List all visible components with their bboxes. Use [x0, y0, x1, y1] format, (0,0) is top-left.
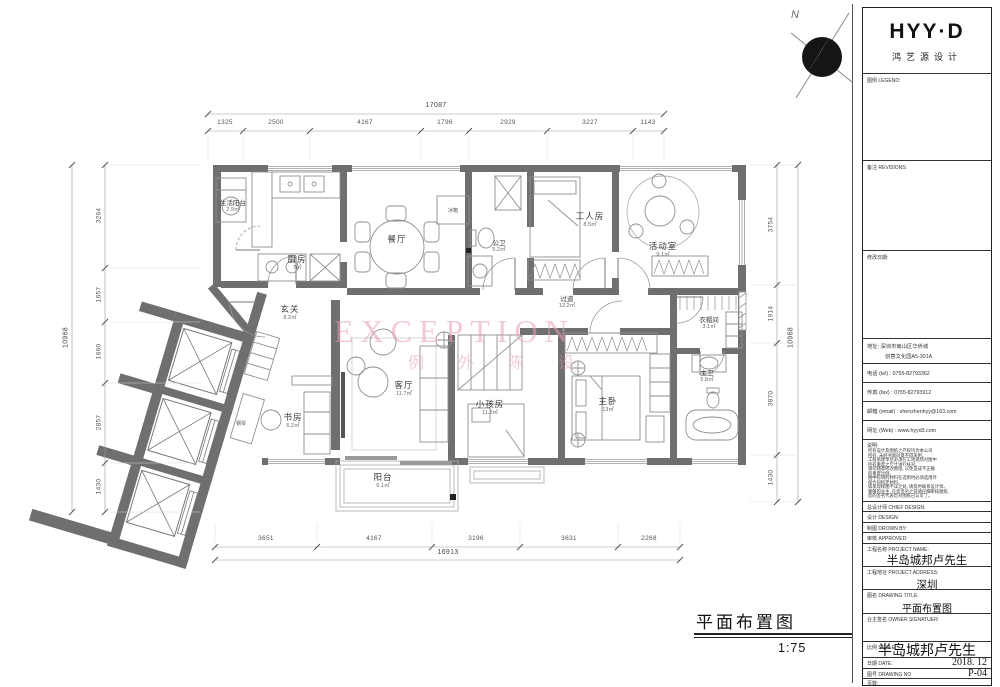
dim-label: 2268: [624, 535, 674, 542]
design-label: 设计 DESIGN:: [867, 514, 899, 521]
room-label-activity-room: 活动室9.1㎡: [618, 242, 708, 258]
plan-title: 平面布置图: [696, 608, 796, 633]
room-label-kids-room: 小孩房11.2㎡: [445, 400, 535, 416]
date-label: 日期 DATE.: [867, 660, 893, 667]
room-label-study: 书房6.2㎡: [248, 413, 338, 429]
dim-label: 4167: [340, 119, 390, 126]
chief-design-label: 总设计师 CHIEF DESIGN:: [867, 504, 925, 511]
revisions-section-label: 备注 REVISIONS:: [867, 164, 907, 171]
address-line2: 创意文化园A5-301A: [885, 352, 932, 360]
plan-title-underline2: [694, 637, 852, 638]
dim-label: 3264: [96, 191, 103, 241]
modify-date-label: 修改日期:: [867, 254, 888, 261]
dim-total-label: 17087: [411, 102, 461, 109]
room-label-living-room: 客厅11.7㎡: [359, 381, 449, 397]
web-row: 网址 (Web) : www.hyyd3.com: [867, 426, 936, 434]
dim-label: 3870: [768, 374, 775, 424]
dim-label: 1430: [96, 462, 103, 512]
project-address-label: 工程地址 PROJECT ADDRESS:: [867, 569, 938, 576]
plan-title-underline: [694, 633, 852, 635]
north-label: N: [791, 9, 799, 21]
dim-label: 1657: [96, 270, 103, 320]
dim-label: 1796: [420, 119, 470, 126]
elevator-core: [28, 248, 266, 569]
room-label-master-bedroom: 主卧13㎡: [563, 397, 653, 413]
room-label-kitchen: 厨房7㎡: [252, 255, 342, 271]
drawing-title-label: 图名 DRAWING TITLE:: [867, 592, 919, 599]
dim-label: 1660: [96, 327, 103, 377]
notes-text: 所有设计及图纸之产权均为本公司所有, 未经书面同意不得采用。 工程承建单位必须在…: [868, 449, 949, 499]
piano-label: 钢琴: [221, 420, 261, 427]
dim-label: 2500: [251, 119, 301, 126]
room-label-corridor: 过道12.2㎡: [522, 296, 612, 310]
dim-total-label: 10968: [63, 313, 70, 363]
room-label-public-bath: 公卫5.2㎡: [454, 240, 544, 254]
title-block: HYY·D 鸿艺源设计 图例 LEGEND: 备注 REVISIONS: 修改日…: [862, 7, 992, 686]
fridge-label: 冰箱: [433, 207, 473, 214]
approved-label: 审核 APPROVED:: [867, 535, 908, 542]
watermark-text: EXCEPTION: [334, 313, 594, 350]
dim-label: 3227: [565, 119, 615, 126]
drawing-sheet: EXCEPTION 例外陈设 N 生活阳台2.9㎡ 厨房7㎡ 餐厅 公卫5.2㎡…: [0, 0, 1000, 687]
company-logo: HYY·D: [863, 20, 991, 44]
room-label-cloakroom: 衣帽间3.1㎡: [664, 317, 754, 331]
date-value: 2018. 12: [952, 657, 987, 668]
owner-signature-label: 业主签名 OWNER SIGNATUER:: [867, 616, 939, 623]
dim-label: 3196: [451, 535, 501, 542]
room-label-dining: 餐厅: [352, 235, 442, 245]
north-arrow-icon: [791, 13, 852, 98]
dim-label: 2857: [96, 398, 103, 448]
drawn-by-label: 制图 DROWN BY:: [867, 525, 907, 532]
room-label-balcony: 阳台6.1㎡: [338, 473, 428, 489]
room-label-service-balcony: 生活阳台2.9㎡: [188, 200, 278, 214]
room-label-foyer: 玄关8.2㎡: [245, 305, 335, 321]
dim-label: 2929: [483, 119, 533, 126]
pages-label: 页数:: [867, 680, 878, 687]
room-label-worker-room: 工人房8.5㎡: [545, 212, 635, 228]
watermark-subtext: 例外陈设: [408, 349, 608, 373]
room-label-master-bath: 主卫5.8㎡: [662, 370, 752, 384]
dim-label: 1143: [623, 119, 673, 126]
plan-scale: 1:75: [778, 641, 806, 655]
dim-label: 4167: [349, 535, 399, 542]
dim-label: 1325: [200, 119, 250, 126]
dim-label: 3651: [241, 535, 291, 542]
email-row: 邮箱 (email) : shenzhenhyy@163.com: [867, 407, 957, 415]
fax-row: 传真 (fax) : 0755-82793912: [867, 388, 931, 396]
dim-label: 3631: [544, 535, 594, 542]
address-line1: 地址: 深圳市南山区华侨城: [867, 342, 928, 350]
company-logo-chinese: 鸿艺源设计: [863, 50, 991, 63]
dim-label: 3754: [768, 200, 775, 250]
dim-label: 1914: [768, 289, 775, 339]
legend-section-label: 图例 LEGEND:: [867, 77, 900, 84]
drawing-no-label: 图号 DRAWING NO: [867, 671, 911, 678]
dim-total-label: 10968: [788, 313, 795, 363]
tel-row: 电话 (tel) : 0755-82793362: [867, 369, 930, 377]
dim-label: 1430: [768, 453, 775, 503]
dim-total-label: 16913: [423, 549, 473, 556]
sheet-divider-line: [852, 4, 853, 683]
